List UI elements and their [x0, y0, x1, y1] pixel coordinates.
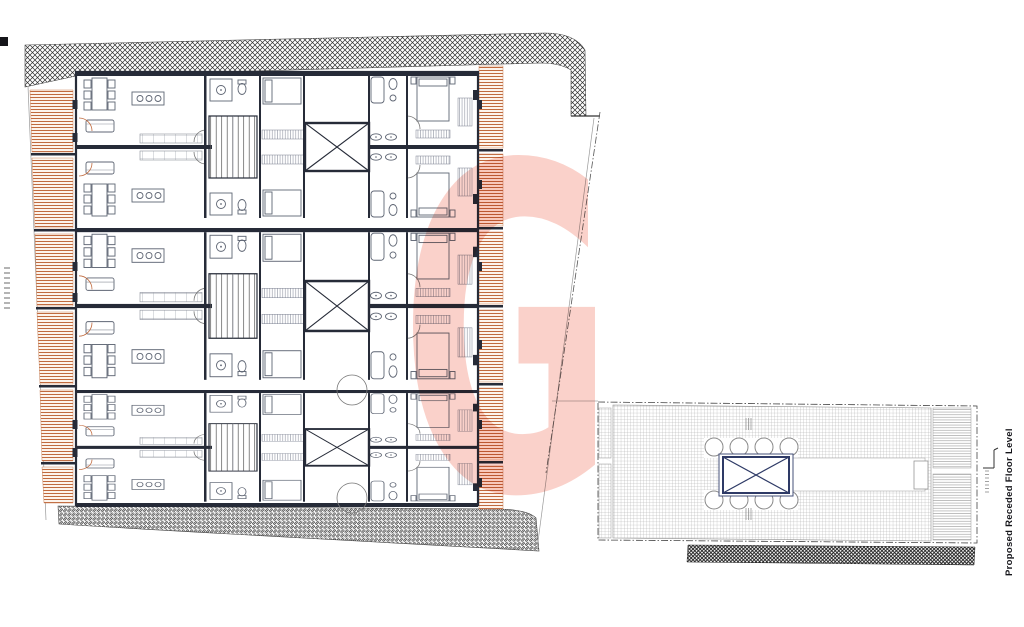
- architectural-drawing-sheet: G Proposed Receded Floor Level: [0, 0, 1024, 627]
- site-boundary-line-right: [537, 118, 594, 549]
- illegible-margin-note: [4, 268, 10, 308]
- roof-plan: [552, 401, 977, 565]
- bottom-party-wall-hatch: [58, 506, 539, 551]
- section-marker: [983, 448, 998, 492]
- roof-walkway: [788, 458, 925, 491]
- margin-tick: [0, 37, 8, 46]
- left-balcony-strip: [30, 90, 75, 503]
- side-label: Proposed Receded Floor Level: [1004, 428, 1015, 576]
- building-bottom-wall: [76, 503, 478, 507]
- boundary-dashdot-line: [546, 112, 600, 473]
- roof-lift-shaft: [719, 454, 793, 496]
- roof-party-wall-hatch: [687, 545, 975, 565]
- right-balcony-strip: [479, 66, 503, 509]
- floor-plan-svg: [0, 0, 1024, 627]
